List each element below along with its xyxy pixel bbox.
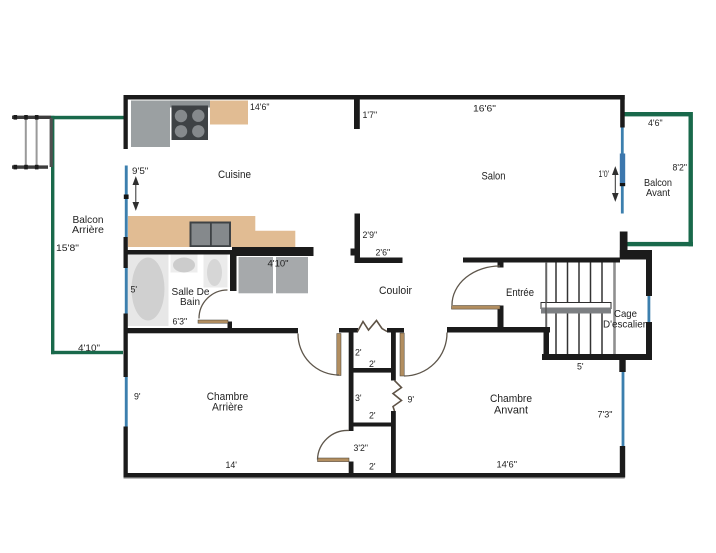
svg-text:2': 2' [369,411,376,421]
svg-text:Salon: Salon [482,171,506,183]
svg-text:1'7": 1'7" [363,110,378,120]
svg-text:Avant: Avant [646,187,670,199]
svg-text:14': 14' [226,460,238,470]
svg-text:3'2": 3'2" [354,443,369,453]
svg-text:5': 5' [577,362,584,372]
svg-text:2': 2' [355,348,362,358]
svg-text:6'3": 6'3" [173,317,188,327]
svg-text:4'6": 4'6" [648,118,663,128]
svg-text:Couloir: Couloir [379,285,412,297]
svg-text:4'10": 4'10" [268,259,289,269]
svg-text:7'3": 7'3" [598,410,613,420]
svg-text:2'9": 2'9" [363,230,378,240]
svg-text:Arrière: Arrière [212,402,243,414]
svg-text:Bain: Bain [180,296,200,308]
svg-text:2': 2' [369,359,376,369]
svg-text:4'10": 4'10" [78,343,100,353]
svg-text:Entrée: Entrée [506,287,534,299]
svg-text:1'0': 1'0' [599,169,610,179]
svg-text:3': 3' [355,393,362,403]
svg-text:Anvant: Anvant [494,405,528,417]
svg-text:8'2": 8'2" [673,163,688,173]
svg-text:Cuisine: Cuisine [218,169,251,181]
svg-text:9': 9' [134,392,141,402]
svg-text:Arrière: Arrière [72,224,104,236]
svg-text:9': 9' [408,395,415,405]
svg-text:16'6": 16'6" [473,104,496,114]
svg-text:5': 5' [131,285,138,295]
svg-text:2'6": 2'6" [376,248,391,258]
svg-text:2': 2' [369,462,376,472]
svg-text:D'escalier: D'escalier [603,318,646,330]
svg-text:14'6": 14'6" [250,102,270,112]
svg-text:15'8": 15'8" [56,243,79,253]
svg-text:9'5": 9'5" [132,166,148,176]
svg-text:Chambre: Chambre [490,393,532,405]
svg-text:14'6": 14'6" [497,460,518,470]
